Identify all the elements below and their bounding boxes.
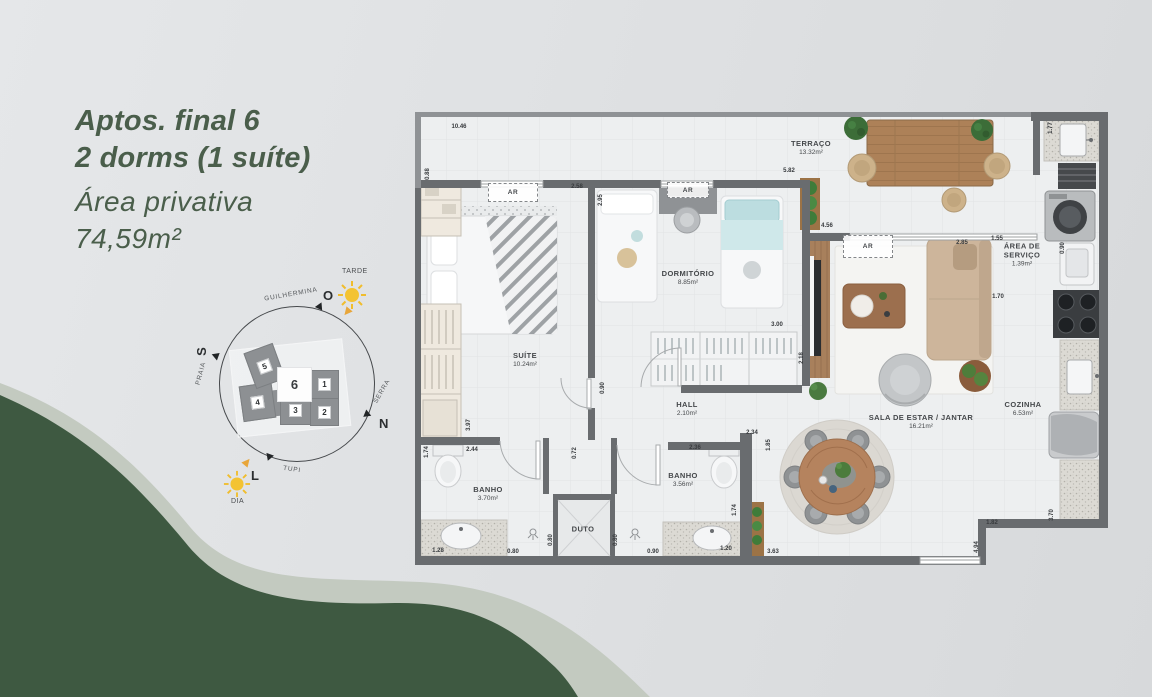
site-building-6: 6: [277, 367, 312, 402]
private-area-value: 74,59m²: [75, 220, 405, 257]
site-building-number: 3: [289, 404, 302, 417]
apartment-title-line2: 2 dorms (1 suíte): [75, 140, 405, 177]
floor-plan: ARARAR TERRAÇO13.32m²DORMITÓRIO8.85m²SUÍ…: [415, 108, 1110, 568]
site-building-number: 1: [318, 378, 331, 391]
site-building-number: 2: [318, 406, 331, 419]
compass-east-letter: L: [251, 468, 259, 483]
site-building-number: 5: [256, 358, 273, 375]
site-building-1: 1: [310, 370, 339, 399]
afternoon-sun-label: TARDE: [342, 268, 368, 275]
private-area-label: Área privativa: [75, 183, 405, 220]
compass-west-letter: O: [323, 288, 333, 303]
site-building-number: 4: [250, 395, 265, 410]
day-sun-label: DIA: [231, 498, 244, 505]
compass-north-letter: N: [379, 416, 388, 431]
day-sun-icon: [223, 470, 251, 498]
compass-south-letter: S: [194, 347, 209, 356]
site-building-2: 2: [310, 398, 339, 426]
afternoon-sun-icon: [337, 280, 367, 310]
floor-plan-drawing: [415, 108, 1110, 568]
apartment-title-line1: Aptos. final 6: [75, 103, 405, 140]
site-building-number: 6: [291, 377, 298, 392]
site-compass: 123456 GUILHERMINA PRAIA SERRA TUPI O S …: [185, 258, 405, 508]
title-block: Aptos. final 6 2 dorms (1 suíte) Área pr…: [75, 103, 405, 257]
